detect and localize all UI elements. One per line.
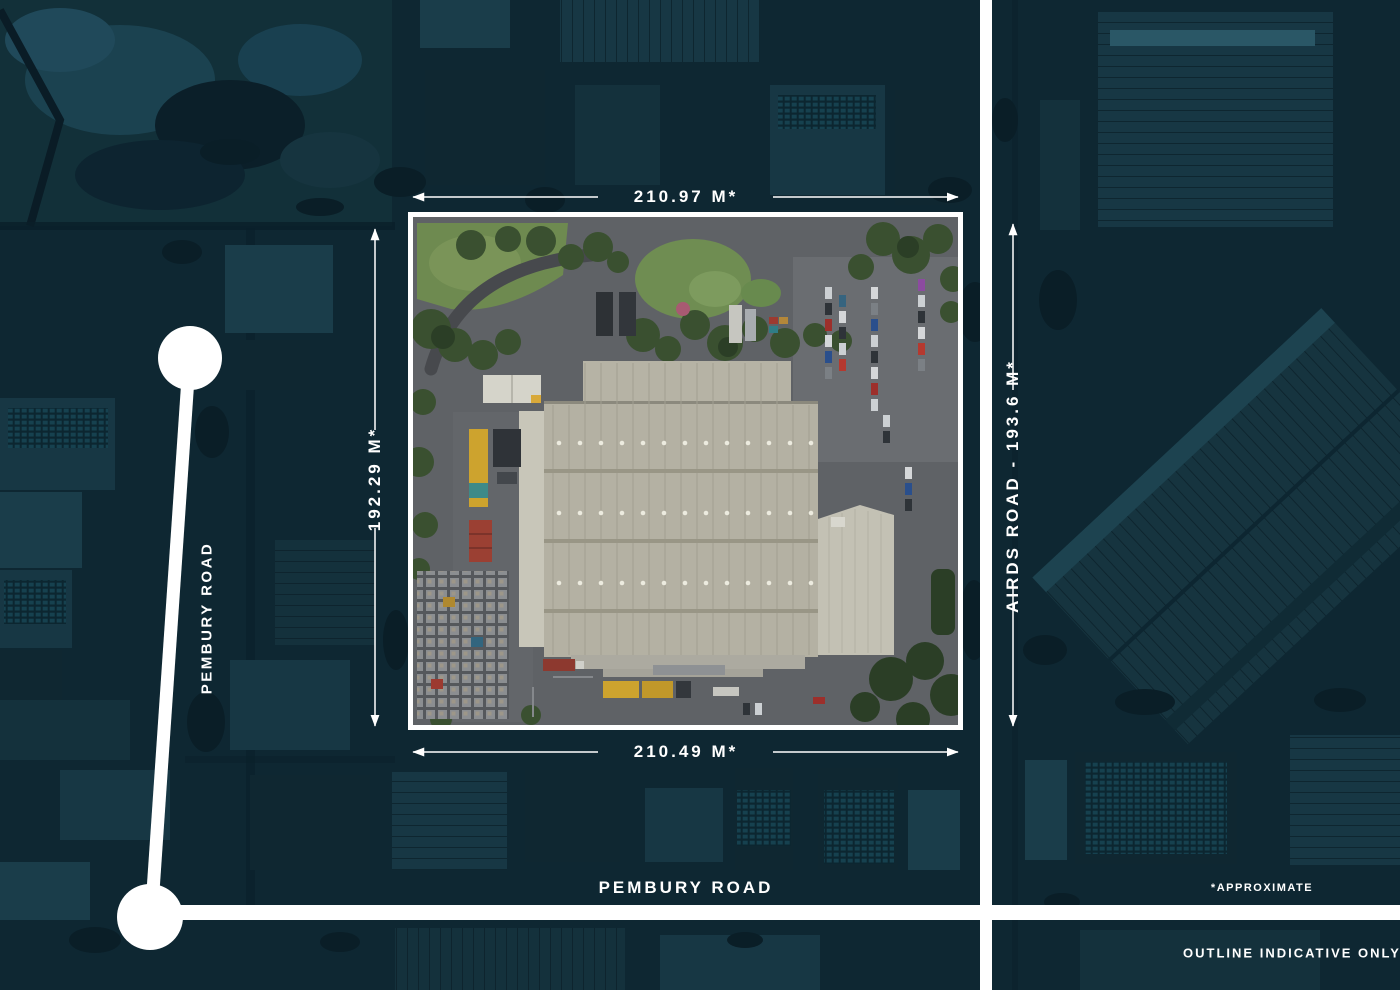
dimension-label-bottom: 210.49 M* — [634, 742, 739, 762]
road-label-pembury-west: PEMBURY ROAD — [199, 542, 216, 695]
approximate-note: *APPROXIMATE — [1211, 882, 1313, 894]
dimension-arrows — [0, 0, 1400, 990]
outline-indicative-note: OUTLINE INDICATIVE ONLY — [1183, 946, 1400, 961]
dimension-label-right-airds-road: AIRDS ROAD - 193.6 M* — [1003, 359, 1023, 613]
dimension-label-left: 192.29 M* — [365, 427, 385, 532]
road-label-pembury-south: PEMBURY ROAD — [599, 878, 774, 898]
site-plan-canvas: 210.97 M* 210.49 M* 192.29 M* AIRDS ROAD… — [0, 0, 1400, 990]
dimension-label-top: 210.97 M* — [634, 187, 739, 207]
